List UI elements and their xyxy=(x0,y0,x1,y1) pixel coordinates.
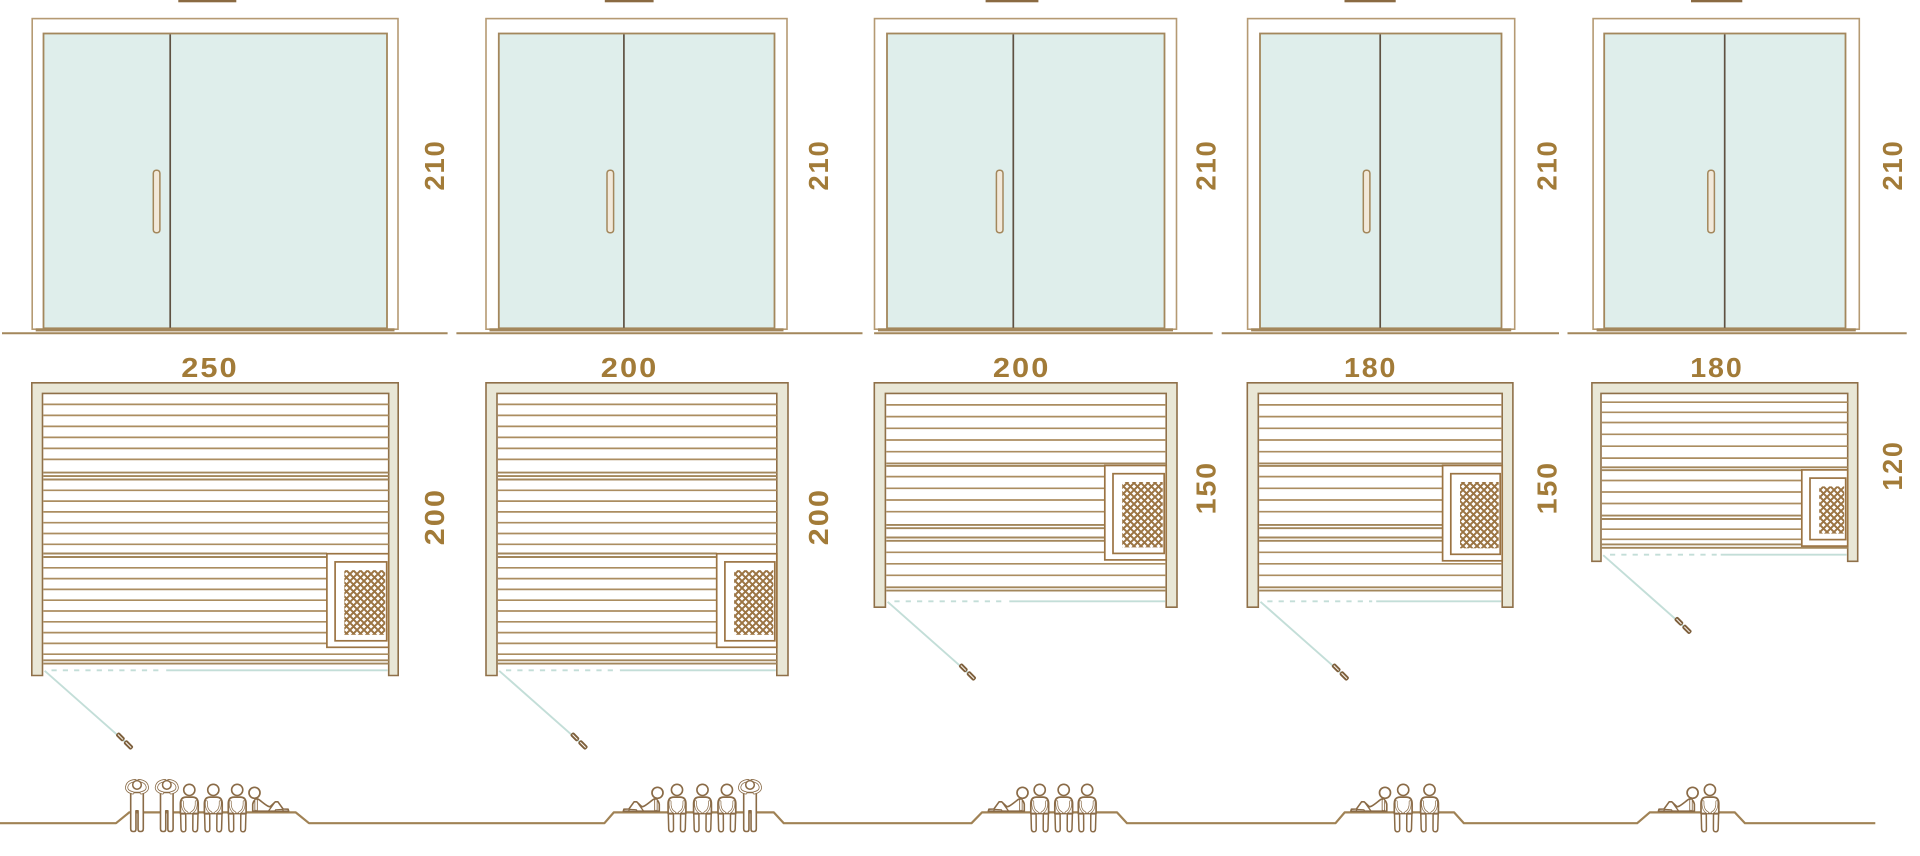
svg-text:210: 210 xyxy=(1532,139,1563,190)
svg-text:210: 210 xyxy=(1877,139,1908,190)
svg-text:200: 200 xyxy=(993,353,1050,383)
svg-text:180: 180 xyxy=(1344,352,1397,382)
svg-text:120: 120 xyxy=(1877,440,1908,490)
svg-text:180: 180 xyxy=(1690,352,1743,382)
svg-text:210: 210 xyxy=(1191,139,1222,190)
svg-text:150: 150 xyxy=(1191,461,1221,514)
svg-text:150: 150 xyxy=(1532,461,1562,514)
svg-text:210: 210 xyxy=(419,139,450,190)
svg-text:200: 200 xyxy=(601,353,658,383)
svg-text:250: 250 xyxy=(181,353,238,383)
svg-text:200: 200 xyxy=(420,488,450,545)
svg-text:200: 200 xyxy=(804,488,834,545)
svg-text:210: 210 xyxy=(803,139,834,190)
